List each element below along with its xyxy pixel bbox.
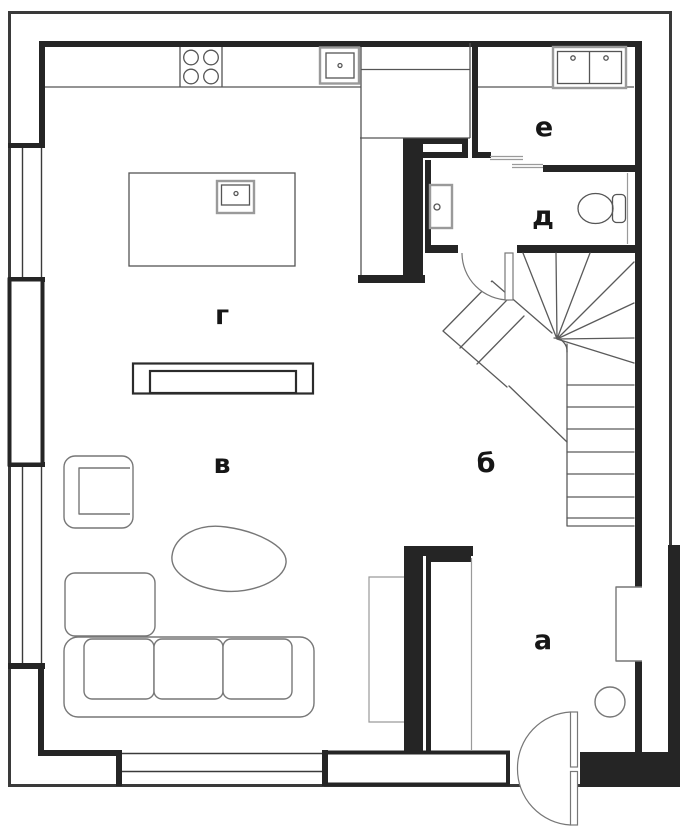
stair-treads [567, 385, 634, 518]
island-sink [217, 181, 254, 213]
sofa-cushion [84, 639, 154, 699]
entry-door-leaf [571, 712, 578, 767]
wall-hall-partition [404, 546, 423, 753]
wall-shaft-top [403, 138, 468, 144]
stair-newel [554, 338, 567, 352]
wall-shaft-right [462, 138, 468, 158]
toilet-tank [613, 195, 626, 223]
coffee-table [172, 526, 286, 591]
window-bottom [122, 754, 322, 772]
sofa-cushion [223, 639, 292, 699]
wall-left-cavity [10, 280, 43, 465]
room-label-d: д [532, 201, 554, 232]
utility-group [478, 47, 634, 88]
window-cap [116, 750, 122, 786]
bath-door-leaf [505, 253, 513, 300]
cooktop-burner [184, 50, 199, 65]
wall-right-outer [668, 545, 680, 787]
wall-utility-left [472, 41, 478, 155]
wardrobe-left-edge [426, 556, 431, 753]
sofa-chaise [65, 573, 155, 636]
room-label-b: б [477, 448, 496, 479]
window-left-1 [23, 148, 42, 277]
entry-door-swing [517, 712, 570, 825]
stair-winders [523, 253, 634, 363]
wall-hall-partition-cap [404, 546, 473, 556]
thresholds-group [490, 157, 543, 168]
wall-bottom-left [38, 750, 122, 756]
window-cap [8, 143, 45, 148]
sofa-cushion [154, 639, 223, 699]
furniture-group [64, 364, 642, 751]
staircase [443, 253, 634, 526]
wall-bath-top [543, 165, 641, 172]
wall-top [41, 41, 641, 47]
armchair-seat [79, 468, 130, 514]
bath-door-threshold [512, 165, 543, 168]
room-label-v: в [213, 449, 230, 480]
wall-kitchen-stem [403, 138, 423, 283]
side-cabinet [369, 577, 404, 722]
bath-door-swing [462, 253, 509, 300]
toilet-bowl [578, 194, 613, 224]
floor-plan-drawing: г в б а д е [0, 0, 683, 832]
room-label-e: е [535, 112, 553, 143]
tv-console-inner [150, 371, 296, 393]
wall-bath-bottom-left [425, 245, 458, 253]
kitchen-island [129, 173, 295, 266]
window-left-2 [23, 467, 42, 663]
cooktop-burner [204, 69, 219, 84]
bath-sink [430, 185, 452, 228]
hall-stool [595, 687, 625, 717]
room-label-g: г [215, 300, 229, 331]
stair-flight-boundary [567, 344, 634, 526]
wall-utility-bottom [472, 152, 491, 158]
wall-shaft-bottom [423, 152, 468, 158]
stair-lower-flight [443, 281, 567, 442]
entry-door-leaf [571, 772, 578, 826]
wall-kitchen-cap [358, 275, 425, 283]
floor-plan: г в б а д е [0, 0, 683, 832]
wardrobe-top-edge [426, 556, 471, 562]
cooktop-burner [184, 69, 199, 84]
bathroom-group [430, 173, 628, 244]
wall-bottom-right [580, 752, 680, 787]
hall-bench [616, 587, 642, 661]
wall-left-upper [39, 41, 45, 148]
wall-left-lower [38, 667, 44, 756]
wall-bottom-cavity [326, 753, 508, 785]
utility-door-threshold [490, 157, 523, 160]
cooktop-burner [204, 50, 219, 65]
room-label-a: а [534, 625, 552, 656]
cooktop-outline [180, 47, 222, 87]
wall-bath-bottom-right [517, 245, 641, 253]
